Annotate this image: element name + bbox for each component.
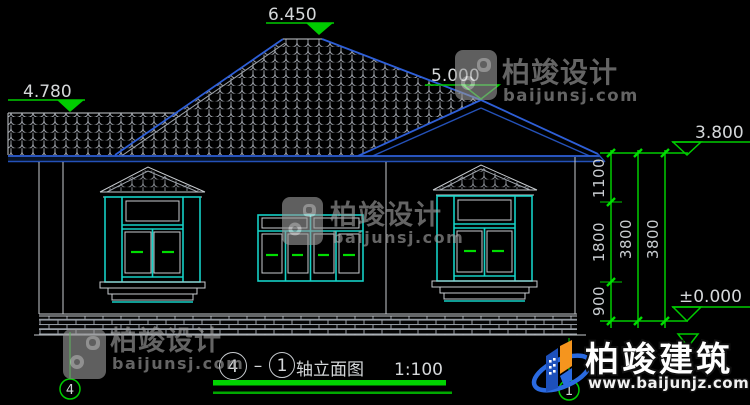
elevation-marker-left-eave: 4.780 — [8, 82, 85, 112]
brand-logo-site: www.baijunjz.com — [588, 374, 749, 392]
elevation-marker-ground: ±0.000 — [672, 287, 750, 347]
watermark-top-right: 柏竣设计 baijunsj.com — [455, 50, 639, 105]
elevation-value: 6.450 — [268, 5, 317, 25]
left-window-sill — [100, 282, 205, 302]
watermark-center: 柏竣设计 baijunsj.com — [282, 197, 464, 247]
eave-fascia — [8, 154, 605, 162]
middle-window-pane-1 — [262, 234, 282, 273]
watermark-brand: 柏竣设计 — [110, 325, 222, 357]
title-separator: – — [254, 356, 263, 376]
drawing-title: 轴立面图 — [296, 360, 364, 380]
dim-1800: 1800 — [590, 222, 608, 262]
level-triangle-icon — [306, 23, 333, 35]
elevation-marker-ridge: 6.450 — [266, 5, 334, 35]
watermark-brand: 柏竣设计 — [502, 56, 618, 89]
watermark-logo-icon — [63, 329, 106, 379]
elevation-marker-right-eave: 3.800 — [672, 123, 750, 155]
dimension-chain: 1100 1800 900 3800 3800 — [590, 149, 688, 328]
dim-3800-outer: 3800 — [644, 219, 662, 259]
title-axis-to: 1 — [277, 356, 288, 376]
brand-logo: 柏竣建筑 www.baijunjz.com — [529, 340, 749, 398]
watermark-bottom-left: 柏竣设计 baijunsj.com — [63, 325, 244, 379]
left-bay-window — [100, 167, 205, 302]
elevation-value: 3.800 — [695, 123, 744, 143]
axis-number: 4 — [66, 383, 74, 398]
title-block: 4 – 1 轴立面图 1:100 — [213, 353, 452, 395]
title-underline-thin — [213, 392, 452, 395]
level-triangle-icon — [57, 100, 84, 112]
watermark-brand: 柏竣设计 — [330, 199, 442, 231]
elevation-drawing-canvas: 4.780 6.450 5.000 3.800 ±0.000 — [0, 0, 750, 405]
watermark-site: baijunsj.com — [112, 354, 244, 373]
level-triangle-icon — [673, 307, 701, 321]
cad-elevation-screenshot: 4.780 6.450 5.000 3.800 ±0.000 — [0, 0, 750, 405]
dim-1100: 1100 — [590, 158, 608, 198]
left-window-transom-pane — [126, 201, 179, 221]
title-underline-thick — [213, 380, 446, 386]
right-window-transom-pane — [458, 200, 511, 220]
watermark-site: baijunsj.com — [503, 86, 639, 105]
right-window-sill — [432, 281, 537, 301]
watermark-site: baijunsj.com — [332, 228, 464, 247]
watermark-logo-icon — [282, 197, 323, 245]
dim-3800-inner: 3800 — [617, 219, 635, 259]
right-window-gable — [433, 165, 537, 195]
left-window-gable — [100, 167, 205, 197]
roof-tile-area — [8, 39, 481, 155]
drawing-scale: 1:100 — [394, 360, 443, 380]
elevation-value: ±0.000 — [679, 287, 742, 307]
dim-900: 900 — [590, 286, 608, 316]
elevation-value: 4.780 — [23, 82, 72, 102]
watermark-logo-icon — [455, 50, 497, 100]
